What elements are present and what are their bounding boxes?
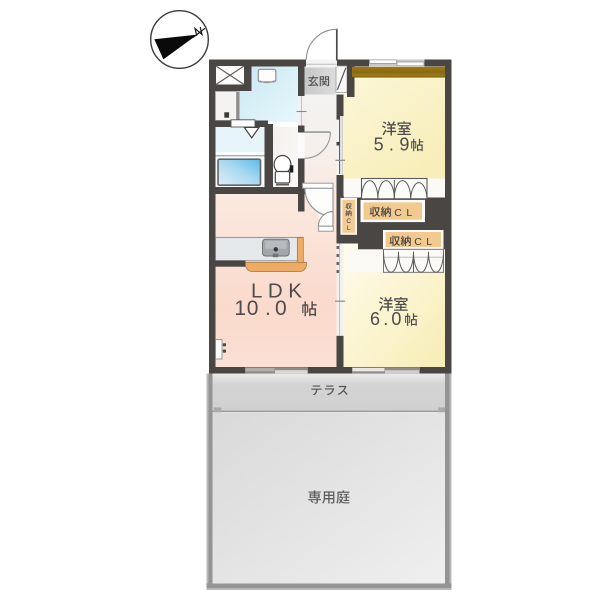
svg-text:L: L	[347, 225, 351, 232]
svg-text:C: C	[346, 218, 351, 225]
svg-text:0: 0	[247, 297, 259, 320]
svg-text:6: 6	[370, 309, 380, 329]
svg-text:CL: CL	[414, 236, 436, 248]
svg-text:0: 0	[391, 309, 401, 329]
svg-text:.: .	[265, 297, 271, 320]
svg-text:CL: CL	[394, 207, 416, 219]
svg-text:.: .	[389, 134, 394, 154]
svg-text:1: 1	[234, 297, 246, 320]
svg-text:0: 0	[275, 297, 287, 320]
svg-text:9: 9	[399, 134, 409, 154]
svg-text:.: .	[383, 309, 388, 329]
svg-text:5: 5	[374, 134, 384, 154]
